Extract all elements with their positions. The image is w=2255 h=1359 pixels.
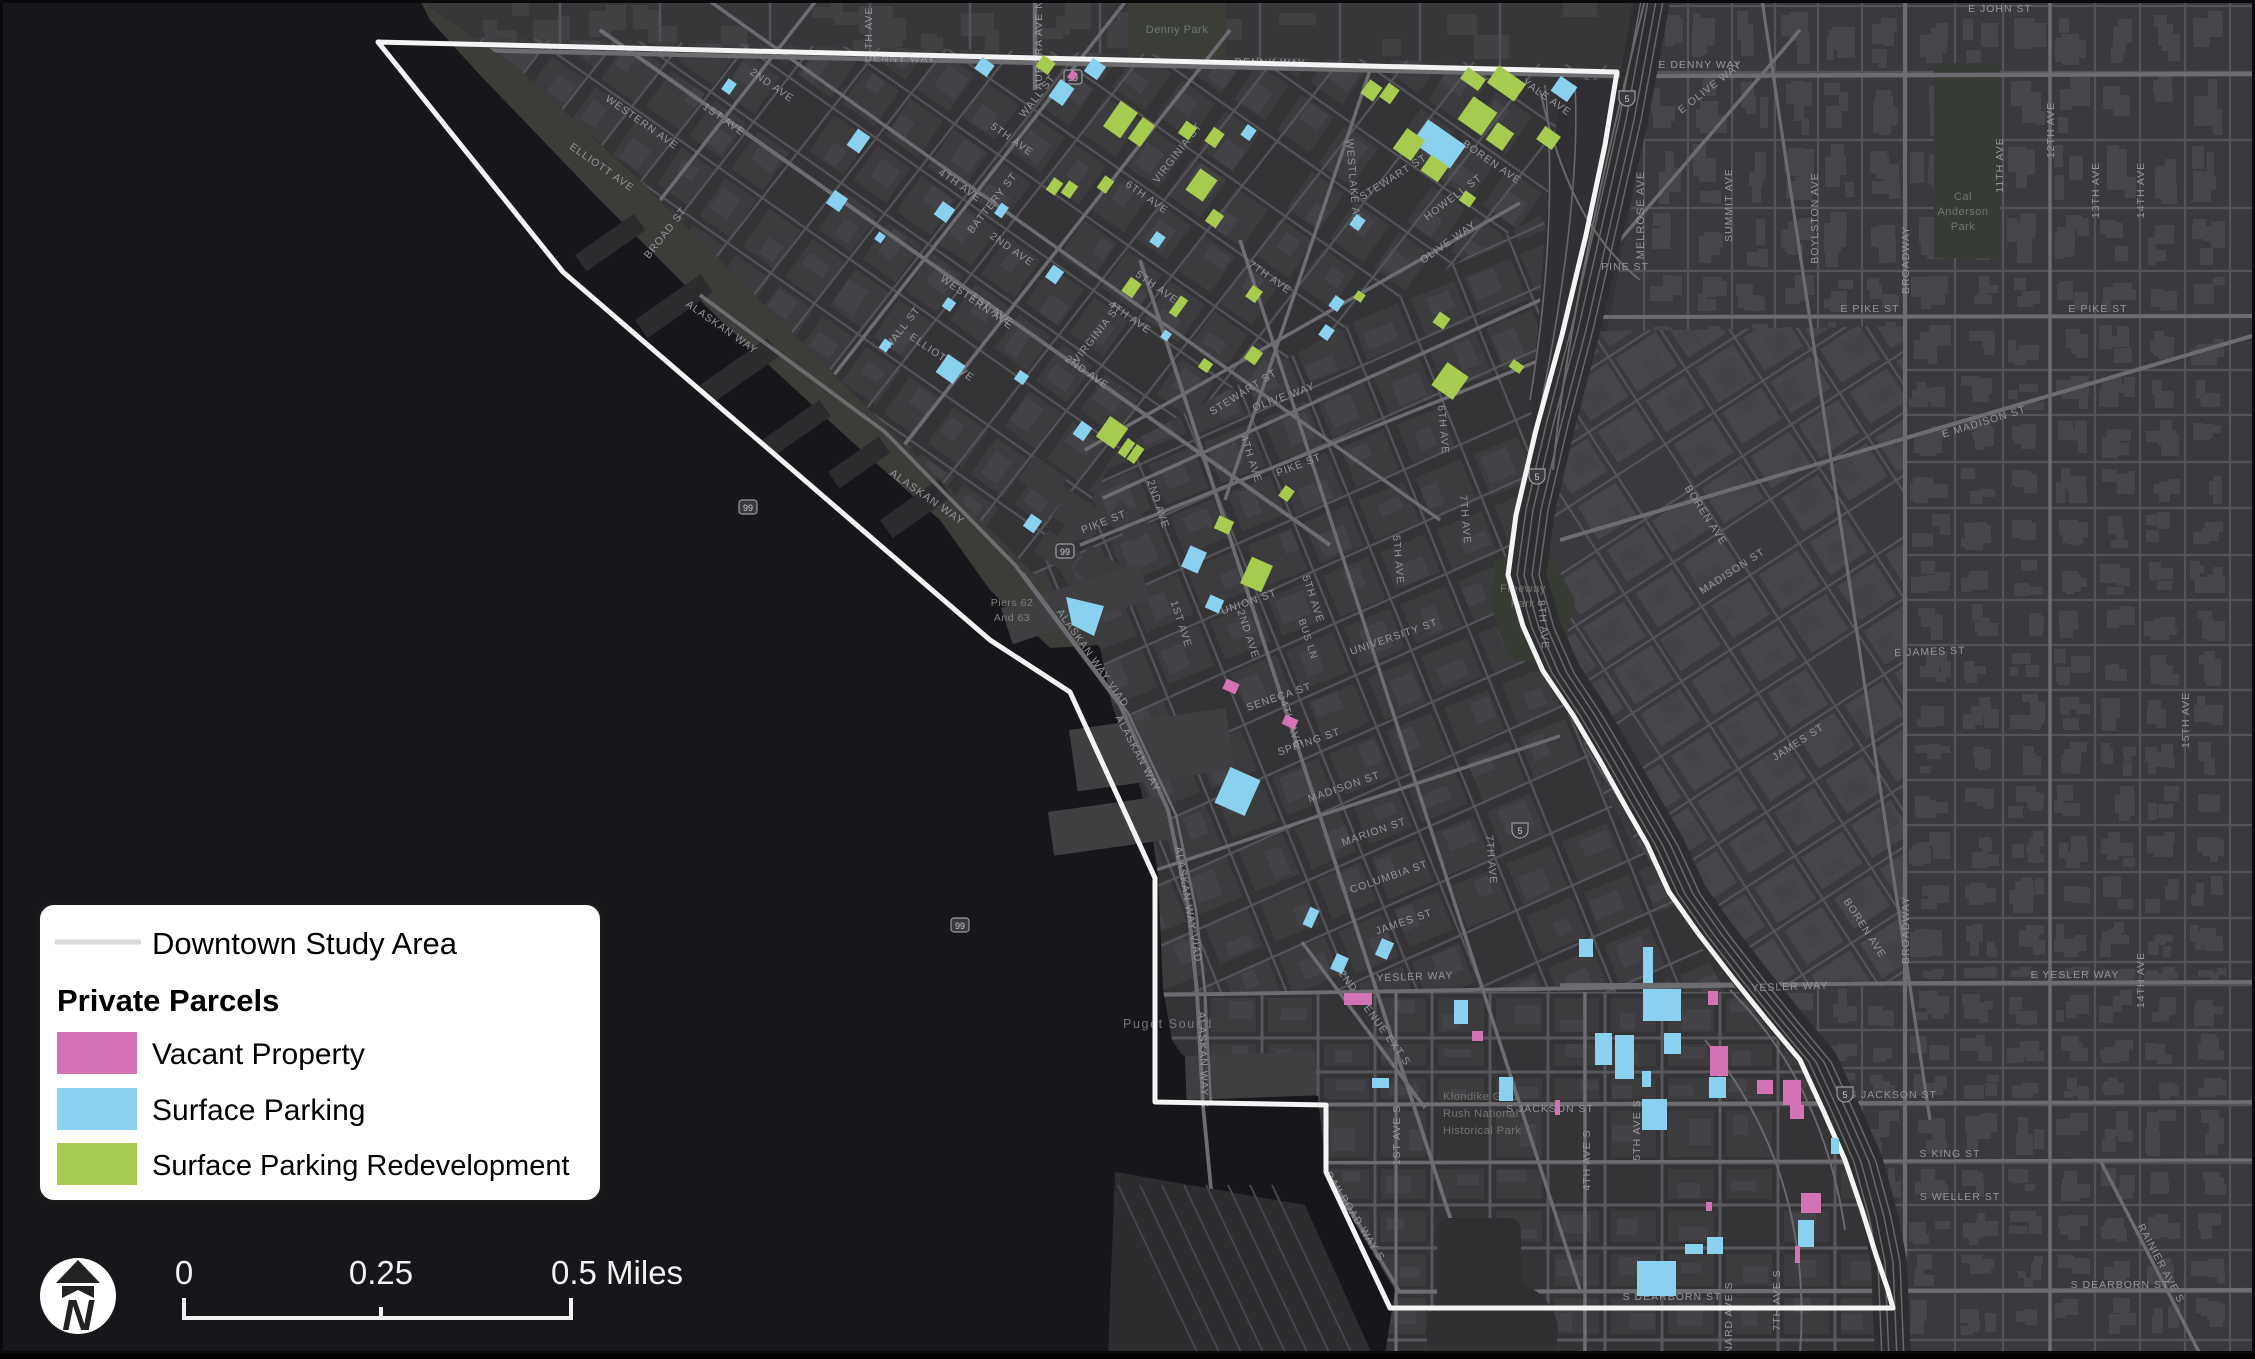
svg-text:Puget Sound: Puget Sound [1123, 1017, 1213, 1031]
svg-text:BOYLSTON AVE: BOYLSTON AVE [1809, 172, 1821, 264]
svg-text:5: 5 [1624, 94, 1629, 104]
svg-text:S JACKSON ST: S JACKSON ST [1506, 1103, 1594, 1115]
svg-text:1ST AVE S: 1ST AVE S [1391, 1105, 1403, 1166]
svg-text:BROADWAY: BROADWAY [1900, 226, 1912, 294]
svg-text:S WELLER ST: S WELLER ST [1920, 1191, 2000, 1203]
svg-text:E JOHN ST: E JOHN ST [1968, 3, 2032, 15]
svg-text:11TH AVE: 11TH AVE [1994, 137, 2006, 192]
svg-text:E JAMES ST: E JAMES ST [1894, 645, 1966, 659]
svg-text:13TH AVE: 13TH AVE [2090, 162, 2102, 218]
svg-text:Park: Park [1951, 221, 1976, 233]
svg-text:AURORA AVE N: AURORA AVE N [1033, 0, 1045, 89]
svg-text:Private Parcels: Private Parcels [57, 983, 279, 1018]
svg-text:And 63: And 63 [994, 612, 1030, 624]
svg-text:Vacant Property: Vacant Property [152, 1038, 365, 1071]
svg-text:Rush National: Rush National [1443, 1108, 1519, 1120]
svg-text:E PIKE ST: E PIKE ST [2068, 303, 2127, 315]
svg-text:0: 0 [175, 1254, 193, 1291]
svg-text:PINE ST: PINE ST [1601, 261, 1649, 273]
svg-text:E PIKE ST: E PIKE ST [1840, 303, 1899, 315]
svg-text:14TH AVE: 14TH AVE [2135, 162, 2147, 218]
svg-text:Denny Park: Denny Park [1146, 24, 1208, 36]
svg-text:12TH AVE: 12TH AVE [2045, 102, 2057, 158]
svg-text:5: 5 [1517, 826, 1522, 836]
svg-text:Historical Park: Historical Park [1443, 1125, 1521, 1137]
svg-text:Downtown Study Area: Downtown Study Area [152, 926, 458, 961]
svg-text:0.5 Miles: 0.5 Miles [551, 1254, 683, 1291]
svg-text:E YESLER WAY: E YESLER WAY [2031, 969, 2120, 981]
svg-text:15TH AVE: 15TH AVE [2180, 692, 2192, 748]
svg-text:Surface Parking: Surface Parking [152, 1094, 365, 1127]
svg-text:S KING ST: S KING ST [1920, 1148, 1981, 1160]
svg-text:MAYNARD AVE S: MAYNARD AVE S [1723, 1281, 1735, 1354]
svg-text:4TH AVE S: 4TH AVE S [1581, 1129, 1593, 1190]
svg-text:N: N [62, 1291, 95, 1340]
svg-text:7TH AVE S: 7TH AVE S [1771, 1269, 1783, 1330]
svg-text:5TH AVE S: 5TH AVE S [1631, 1099, 1643, 1160]
svg-text:Cal: Cal [1954, 191, 1972, 203]
svg-text:14TH AVE: 14TH AVE [2135, 952, 2147, 1008]
svg-text:0.25: 0.25 [349, 1254, 413, 1291]
svg-text:4TH AVE N: 4TH AVE N [863, 0, 875, 56]
svg-text:99: 99 [743, 503, 753, 513]
svg-text:BROADWAY: BROADWAY [1900, 896, 1912, 964]
svg-text:MELROSE AVE: MELROSE AVE [1635, 171, 1647, 259]
svg-text:5: 5 [1534, 472, 1539, 482]
svg-text:Freeway: Freeway [1500, 583, 1546, 595]
svg-text:Piers 62: Piers 62 [991, 597, 1034, 609]
svg-text:99: 99 [1060, 547, 1070, 557]
svg-text:S DEARBORN ST: S DEARBORN ST [2071, 1279, 2170, 1291]
svg-text:Surface Parking Redevelopment: Surface Parking Redevelopment [152, 1150, 570, 1182]
svg-text:S JACKSON ST: S JACKSON ST [1849, 1089, 1937, 1101]
svg-text:99: 99 [955, 921, 965, 931]
svg-text:SUMMIT AVE: SUMMIT AVE [1723, 168, 1735, 242]
svg-text:5: 5 [1842, 1090, 1847, 1100]
svg-text:Anderson: Anderson [1937, 206, 1988, 218]
